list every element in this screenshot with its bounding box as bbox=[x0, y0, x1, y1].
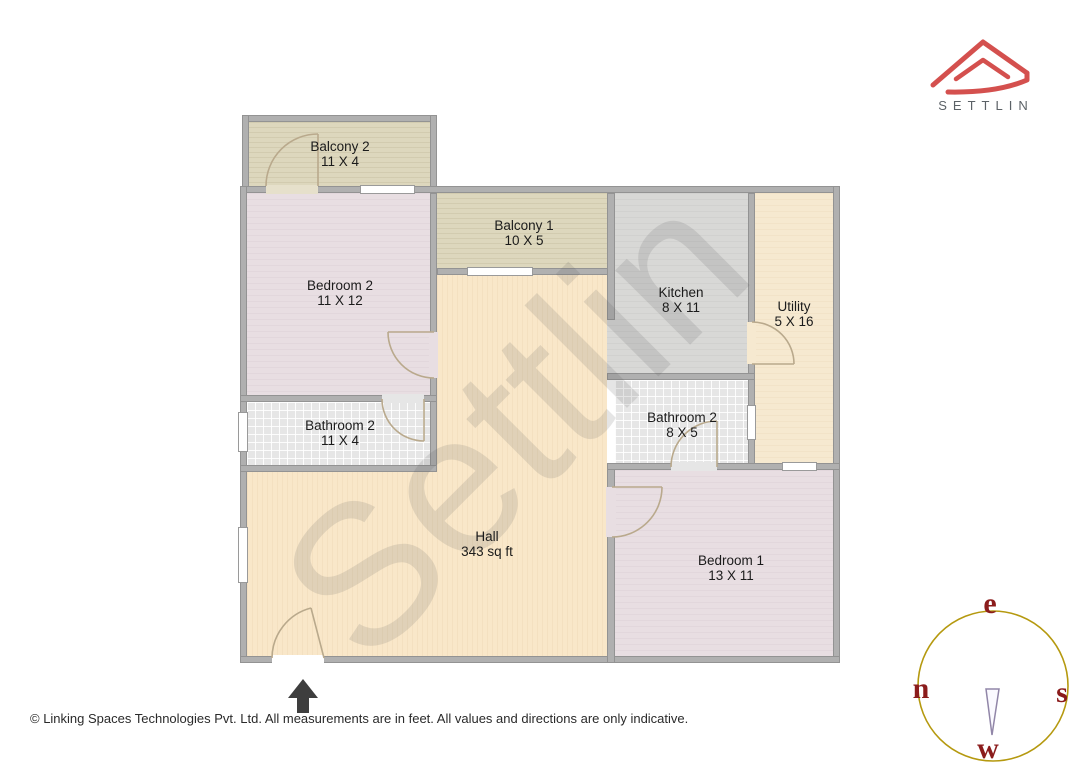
room-dims: 11 X 12 bbox=[307, 293, 373, 308]
label-bathroom-2-left: Bathroom 2 11 X 4 bbox=[305, 418, 375, 448]
room-name: Kitchen bbox=[658, 285, 703, 300]
room-dims: 11 X 4 bbox=[305, 433, 375, 448]
room-dims: 11 X 4 bbox=[310, 154, 369, 169]
label-bedroom-1: Bedroom 1 13 X 11 bbox=[698, 553, 764, 583]
room-name: Bathroom 2 bbox=[647, 410, 717, 425]
room-name: Hall bbox=[461, 529, 513, 544]
room-dims: 8 X 11 bbox=[658, 300, 703, 315]
floor-plan-page: Settlin SETTLIN bbox=[0, 0, 1080, 764]
room-name: Bedroom 1 bbox=[698, 553, 764, 568]
room-dims: 343 sq ft bbox=[461, 544, 513, 559]
label-utility: Utility 5 X 16 bbox=[774, 299, 813, 329]
label-kitchen: Kitchen 8 X 11 bbox=[658, 285, 703, 315]
label-hall: Hall 343 sq ft bbox=[461, 529, 513, 559]
room-labels: Balcony 2 11 X 4 Bedroom 2 11 X 12 Balco… bbox=[0, 0, 1080, 764]
room-name: Balcony 2 bbox=[310, 139, 369, 154]
room-name: Balcony 1 bbox=[494, 218, 553, 233]
room-name: Bedroom 2 bbox=[307, 278, 373, 293]
room-dims: 5 X 16 bbox=[774, 314, 813, 329]
label-bathroom-2-right: Bathroom 2 8 X 5 bbox=[647, 410, 717, 440]
room-name: Bathroom 2 bbox=[305, 418, 375, 433]
room-dims: 13 X 11 bbox=[698, 568, 764, 583]
label-balcony-2: Balcony 2 11 X 4 bbox=[310, 139, 369, 169]
room-dims: 10 X 5 bbox=[494, 233, 553, 248]
disclaimer-text: © Linking Spaces Technologies Pvt. Ltd. … bbox=[30, 711, 688, 726]
room-dims: 8 X 5 bbox=[647, 425, 717, 440]
label-balcony-1: Balcony 1 10 X 5 bbox=[494, 218, 553, 248]
label-bedroom-2: Bedroom 2 11 X 12 bbox=[307, 278, 373, 308]
room-name: Utility bbox=[774, 299, 813, 314]
